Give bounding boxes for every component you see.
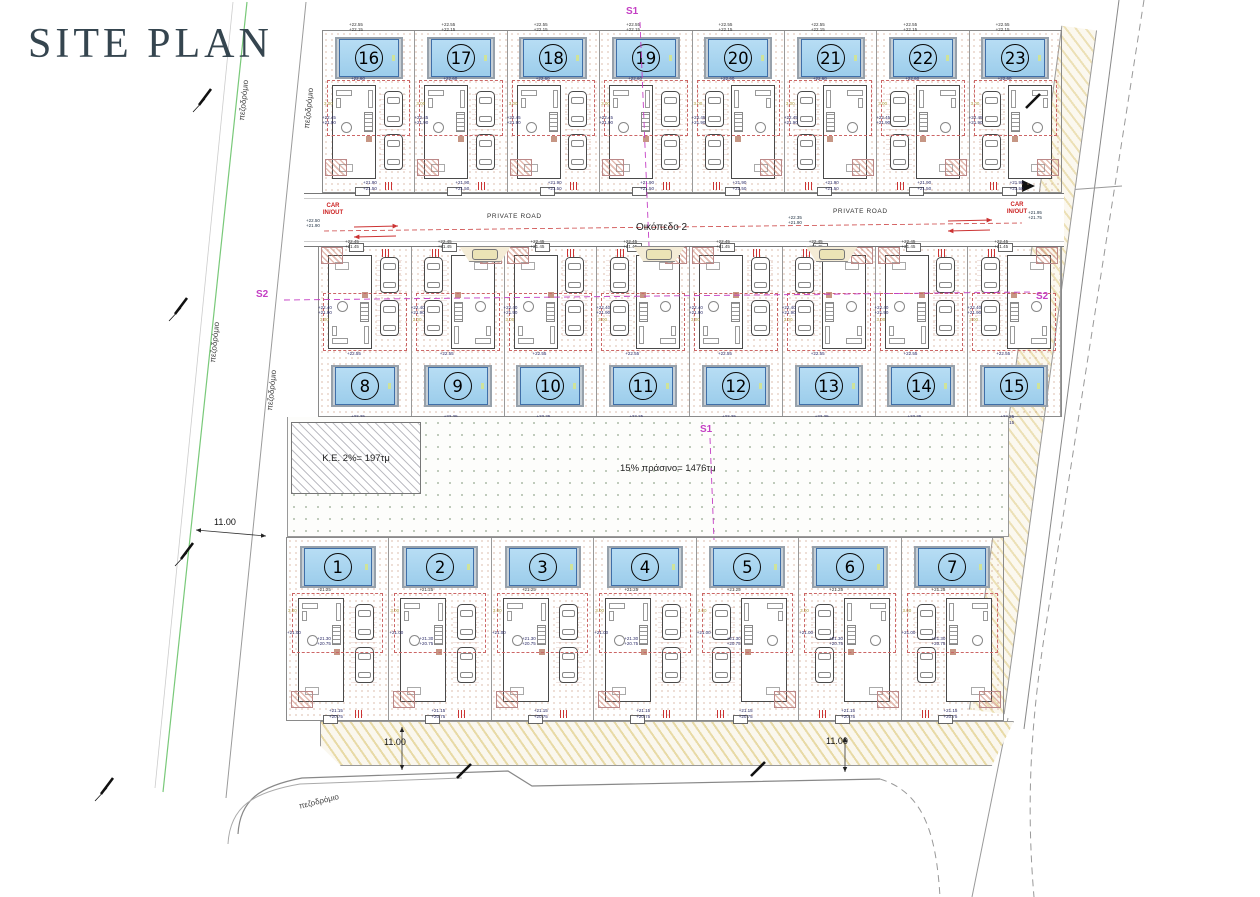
elevation-label: +21.15 +20.75 [841,708,855,719]
section-label-s2-left: S2 [256,289,268,300]
pool: 17 [427,37,495,79]
car-inout-label-left: CAR IN/OUT [312,203,354,217]
car-icon [797,134,816,170]
entry-patio [602,159,624,176]
plot-23: 23+22.55 +22.15+22.60+22.45 +21.90+21.90… [970,31,1061,192]
private-road-label-left: PRIVATE ROAD [487,213,542,220]
driveway-ramp-icon [805,182,814,190]
elevation-label: +22.45 +21.45 [345,239,359,250]
setback-line [416,293,500,351]
elevation-label: +21.30 +20.75 [829,636,843,647]
elevation-label: +22.55 [718,351,732,356]
elevation-label: +21.15 +20.75 [329,708,343,719]
plot-row-top: 16+22.55 +22.15+22.60+22.45 +21.90+21.90… [322,30,1062,193]
plot-number: 1 [324,553,352,581]
car-icon [472,249,498,260]
dimension-label-left: 11.00 [214,517,236,527]
pool: 9 [424,365,492,407]
driveway-ramp-icon [988,249,997,257]
furniture-chim [920,136,926,142]
furniture-chim [1012,136,1018,142]
elevation-label: +21.30 +20.75 [727,636,741,647]
plot-number: 18 [539,44,567,72]
pool-water: 19 [616,39,676,77]
elevation-label: +21.25 [932,587,946,592]
setback-line [804,593,895,653]
driveway-ramp-icon [355,710,364,718]
plot-number: 6 [836,553,864,581]
entry-patio [417,159,439,176]
elevation-label: +21.00 [389,630,403,635]
car-icon [890,134,909,170]
car-icon [795,257,814,293]
plot-18: 18+22.55 +22.15+22.60+22.45 +21.90+21.90… [508,31,600,192]
elevation-label: +22.55 [440,351,454,356]
entry-patio [878,247,900,264]
setback-line [512,80,595,136]
elevation-label: +22.40 +21.90 [782,305,796,316]
driveway-ramp-icon [432,249,441,257]
road-curb-line [304,198,1064,199]
entry-patio [510,159,532,176]
setback-line [702,593,793,653]
elevation-label: +22.55 +22.15 [441,22,455,33]
furniture-chim [735,136,741,142]
pool-water: 4 [611,548,679,586]
elevation-label: +21.00 [492,630,506,635]
elevation-label: +22.55 [904,351,918,356]
driveway-ramp-icon [897,182,906,190]
plot-number: 19 [632,44,660,72]
plot-number: 21 [817,44,845,72]
elevation-label: +22.40 +21.90 [318,305,332,316]
elevation-label: +21.15 +20.75 [944,708,958,719]
pool: 10 [516,365,584,407]
elevation-label: +21.90 +21.50 [917,180,931,191]
setback-dimension: 3.00 [903,608,912,613]
bottom-road-edge-2 [228,778,462,844]
dimension-label-bottom-2: 11.00 [826,736,848,746]
setback-dimension: 3.00 [691,317,700,322]
plot-16: 16+22.55 +22.15+22.60+22.45 +21.90+21.90… [323,31,415,192]
plot-number: 5 [733,553,761,581]
pool: 2 [402,546,478,588]
plot-number: 22 [909,44,937,72]
car-icon [568,134,587,170]
section-label-s1-mid: S1 [700,424,712,435]
furniture-chim [827,136,833,142]
elevation-label: +21.15 +20.75 [739,708,753,719]
elevation-label: +21.25 [419,587,433,592]
entry-patio [692,247,714,264]
plot-number: 3 [529,553,557,581]
pool: 21 [797,37,865,79]
pool-water: 21 [801,39,861,77]
entry-patio [1037,159,1059,176]
elevation-label: +22.40 +21.90 [504,305,518,316]
plot-row-middle: 8+22.45 +21.45+22.55+22.40 +21.90+22.25 … [318,247,1062,417]
elevation-label: +21.25 [522,587,536,592]
elevation-label: +22.55 +22.15 [811,22,825,33]
setback-dimension: 3.00 [601,101,610,106]
setback-dimension: 3.00 [598,317,607,322]
entry-patio [852,159,874,176]
entry-patio [325,159,347,176]
driveway-ramp-icon [385,182,394,190]
plot-4: 4+21.25+21.30 +20.75+21.00+21.15 +20.753… [594,538,696,720]
elevation-label: +21.30 +20.75 [932,636,946,647]
plot-number: 17 [447,44,475,72]
elevation-label: +22.40 +21.90 [967,305,981,316]
driveway-ramp-icon [753,249,762,257]
entry-patio [321,247,343,264]
driveway-ramp-icon [990,182,999,190]
plot-number: 10 [536,372,564,400]
pool: 19 [612,37,680,79]
elevation-label: +21.25 [829,587,843,592]
driveway-ramp-icon [663,182,672,190]
dimension-line-left [196,530,266,536]
elevation-label: +22.55 [347,351,361,356]
elevation-label: +21.30 +20.75 [522,636,536,647]
pool: 12 [702,365,770,407]
car-icon [982,134,1001,170]
entry-patio [877,691,899,708]
setback-dimension: 3.00 [694,101,703,106]
entry-patio [979,691,1001,708]
elevation-label: +22.60 [813,76,827,81]
driveway-ramp-icon [478,182,487,190]
plot-number: 20 [724,44,752,72]
elevation-label: +22.55 [996,351,1010,356]
plot-number: 12 [722,372,750,400]
elevation-label: +21.30 +20.75 [419,636,433,647]
setback-line [974,80,1057,136]
private-road-label-right: PRIVATE ROAD [833,208,888,215]
plot-14: 14+22.45 +21.45+22.55+22.40 +21.90+22.25… [876,247,969,416]
setback-line [323,293,407,351]
elevation-label: +22.45 +21.45 [994,239,1008,250]
car-icon [751,257,770,293]
elevation-label: +21.90 +21.50 [455,180,469,191]
elevation-label: +21.90 +21.50 [548,180,562,191]
section-label-s1-top: S1 [626,6,638,17]
car-label-line2: IN/OUT [312,210,354,217]
setback-dimension: 3.00 [877,317,886,322]
entry-patio [598,691,620,708]
driveway-ramp-icon [458,710,467,718]
entry-patio [760,159,782,176]
elevation-label: +21.00 [287,630,301,635]
dimension-label-bottom-1: 11.00 [384,737,406,747]
car-icon [380,257,399,293]
driveway-ramp-icon [382,249,391,257]
ke-area: K.E. 2%= 197τμ [291,422,421,494]
setback-line [599,593,690,653]
elevation-label: +22.45 +21.90 [414,115,428,126]
driveway-ramp-icon [663,710,672,718]
elevation-label: +22.60 [998,76,1012,81]
setback-line [907,593,998,653]
elevation-label: +22.55 +22.15 [534,22,548,33]
setback-line [789,80,872,136]
pool: 3 [505,546,581,588]
plot-6: 6+21.25+21.30 +20.75+21.00+21.15 +20.753… [799,538,901,720]
elevation-label: +21.00 [594,630,608,635]
setback-line [509,293,593,351]
plot-17: 17+22.55 +22.15+22.60+22.45 +21.90+21.90… [415,31,507,192]
driveway-ramp-icon [938,249,947,257]
pool: 16 [335,37,403,79]
pool: 8 [331,365,399,407]
plot-13: 13+22.45 +21.45+22.55+22.40 +21.90+22.25… [783,247,876,416]
bottom-road-edge [238,771,880,834]
bottom-road-dashed [880,779,940,897]
sidewalk-label: πεζοδρόμιο [298,792,340,811]
plot-8: 8+22.45 +21.45+22.55+22.40 +21.90+22.25 … [319,247,412,416]
setback-dimension: 3.00 [390,608,399,613]
pool: 6 [812,546,888,588]
setback-dimension: 3.00 [320,317,329,322]
plot-number: 2 [426,553,454,581]
elevation-label: +22.60 [628,76,642,81]
sidewalk-label: πεζοδρόμιο [302,87,315,129]
elevation-label: +22.45 +21.90 [784,115,798,126]
setback-dimension: 3.00 [595,608,604,613]
elevation-label: +22.45 +21.45 [902,239,916,250]
elevation-label: +22.60 [351,76,365,81]
setback-dimension: 3.00 [698,608,707,613]
plot-15: 15+22.45 +21.45+22.55+22.40 +21.90+22.25… [968,247,1061,416]
pool: 22 [889,37,957,79]
furniture-chim [458,136,464,142]
setback-dimension: 3.00 [413,317,422,322]
setback-dimension: 3.00 [800,608,809,613]
car-icon [610,257,629,293]
plot-20: 20+22.55 +22.15+22.60+22.45 +21.90+21.90… [693,31,785,192]
entry-patio [774,691,796,708]
driveway-ramp-icon [617,249,626,257]
plot-19: 19+22.55 +22.15+22.60+22.45 +21.90+21.90… [600,31,692,192]
sidewalk-label: πεζοδρόμιο [208,321,221,363]
furniture-chim [551,136,557,142]
plot-number: 4 [631,553,659,581]
elevation-label: +22.40 +21.90 [875,305,889,316]
elevation-label: +22.55 [625,351,639,356]
pool: 7 [914,546,990,588]
setback-dimension: 3.00 [786,101,795,106]
plot-9: 9+22.45 +21.45+22.55+22.40 +21.90+22.25 … [412,247,505,416]
setback-dimension: 3.00 [969,317,978,322]
setback-line [694,293,778,351]
pool-water: 20 [708,39,768,77]
setback-dimension: 3.00 [784,317,793,322]
elevation-label: +22.60 [721,76,735,81]
entry-patio [945,159,967,176]
road-elevation-label: +21.95 +21.75 [1028,210,1042,221]
car-icon [661,134,680,170]
plot-number: 16 [355,44,383,72]
elevation-label: +22.45 +21.45 [438,239,452,250]
elevation-label: +22.45 +21.45 [716,239,730,250]
pool-water: 23 [985,39,1045,77]
pool-water: 14 [891,367,951,405]
boundary-green-line [163,2,247,792]
driveway-ramp-icon [819,710,828,718]
elevation-label: +21.30 +20.75 [624,636,638,647]
plot-11: 11+22.45 +21.45+22.55+22.40 +21.90+22.25… [597,247,690,416]
elevation-label: +21.15 +20.75 [431,708,445,719]
private-road [304,193,1064,247]
setback-line [787,293,871,351]
setback-line [697,80,780,136]
pool: 5 [709,546,785,588]
elevation-label: +22.60 [536,76,550,81]
elevation-label: +22.45 +21.90 [599,115,613,126]
elevation-label: +22.55 [811,351,825,356]
bottom-boundary-strip [320,721,1014,766]
pool-water: 6 [816,548,884,586]
elevation-label: +22.45 +21.90 [322,115,336,126]
setback-dimension: 3.00 [416,101,425,106]
pool-water: 11 [613,367,673,405]
setback-dimension: 3.00 [506,317,515,322]
elevation-label: +22.45 +21.90 [969,115,983,126]
entry-patio [291,691,313,708]
driveway-ramp-icon [570,182,579,190]
driveway-ramp-icon [922,710,931,718]
elevation-label: +22.45 +21.90 [692,115,706,126]
elevation-label: +21.25 [727,587,741,592]
plot-21: 21+22.55 +22.15+22.60+22.45 +21.90+21.90… [785,31,877,192]
plot-number: 14 [907,372,935,400]
section-label-s2-right: S2 [1036,291,1048,302]
green-area: K.E. 2%= 197τμ 15% πράσινο= 1476τμ [287,417,1009,537]
setback-dimension: 3.00 [971,101,980,106]
car-icon [981,257,1000,293]
setback-line [604,80,687,136]
setback-dimension: 3.00 [493,608,502,613]
car-icon [646,249,672,260]
elevation-label: +22.55 +22.15 [719,22,733,33]
driveway-ramp-icon [713,182,722,190]
car-label-line1: CAR [312,203,354,210]
plot-number: 7 [938,553,966,581]
elevation-label: +21.00 [697,630,711,635]
sidewalk-label: πεζοδρόμιο [265,369,278,411]
green-area-label: 15% πράσινο= 1476τμ [620,463,716,474]
elevation-label: +21.25 [317,587,331,592]
elevation-label: +21.30 +20.75 [317,636,331,647]
entry-patio [393,691,415,708]
plot-3: 3+21.25+21.30 +20.75+21.00+21.15 +20.753… [492,538,594,720]
car-icon [424,257,443,293]
elevation-label: +22.60 [443,76,457,81]
furniture-chim [643,136,649,142]
entry-patio [507,247,529,264]
plot-2: 2+21.25+21.30 +20.75+21.00+21.15 +20.753… [389,538,491,720]
pool-water: 16 [339,39,399,77]
elevation-label: +21.90 +21.50 [733,180,747,191]
plot-number: 11 [629,372,657,400]
elevation-label: +22.60 [905,76,919,81]
car-label-line1: CAR [996,202,1038,209]
driveway-ramp-icon [567,249,576,257]
elevation-label: +21.15 +20.75 [636,708,650,719]
pool: 11 [609,365,677,407]
elevation-label: +22.55 +22.15 [996,22,1010,33]
pool-water: 3 [509,548,577,586]
pool: 20 [704,37,772,79]
car-icon [384,134,403,170]
elevation-label: +21.90 +21.50 [640,180,654,191]
road-elevation-label: +22.35 +21.90 [788,215,802,226]
car-icon [565,257,584,293]
entry-patio [496,691,518,708]
setback-line [394,593,485,653]
plot-10: 10+22.45 +21.45+22.55+22.40 +21.90+22.25… [505,247,598,416]
pool-water: 5 [713,548,781,586]
plot-7: 7+21.25+21.30 +20.75+21.00+21.15 +20.753… [902,538,1003,720]
pool: 13 [795,365,863,407]
plot-number: 23 [1001,44,1029,72]
pool-water: 1 [304,548,372,586]
elevation-label: +22.40 +21.90 [411,305,425,316]
plot-number: 13 [815,372,843,400]
elevation-label: +21.00 [902,630,916,635]
elevation-label: +22.40 +21.90 [596,305,610,316]
pool: 23 [981,37,1049,79]
elevation-label: +21.25 [624,587,638,592]
elevation-label: +22.45 +21.90 [507,115,521,126]
setback-line [601,293,685,351]
elevation-label: +22.40 +21.90 [689,305,703,316]
pool-water: 22 [893,39,953,77]
pool: 18 [519,37,587,79]
pool: 15 [980,365,1048,407]
pool-water: 18 [523,39,583,77]
elevation-label: +21.00 [799,630,813,635]
ke-area-label: K.E. 2%= 197τμ [322,453,390,464]
pool-water: 15 [984,367,1044,405]
setback-dimension: 3.00 [288,608,297,613]
pool: 1 [300,546,376,588]
plot-22: 22+22.55 +22.15+22.60+22.45 +21.90+21.90… [877,31,969,192]
elevation-label: +21.90 +21.50 [1010,180,1024,191]
elevation-label: +22.45 +21.45 [531,239,545,250]
setback-line [419,80,502,136]
elevation-label: +22.55 +22.15 [349,22,363,33]
road-elevation-label: +22.50 +21.90 [306,218,320,229]
setback-dimension: 3.00 [878,101,887,106]
elevation-label: +22.55 +22.15 [903,22,917,33]
plot-12: 12+22.45 +21.45+22.55+22.40 +21.90+22.25… [690,247,783,416]
setback-line [292,593,383,653]
sidewalk-label: πεζοδρόμιο [237,79,250,121]
plot-number: 15 [1000,372,1028,400]
entry-patio [1036,247,1058,264]
pool-water: 12 [706,367,766,405]
plot-row-bottom: 1+21.25+21.30 +20.75+21.00+21.15 +20.753… [286,537,1004,721]
elevation-label: +22.55 +22.15 [626,22,640,33]
elevation-label: +21.90 +21.50 [363,180,377,191]
parcel-label: Οικόπεδο 2 [636,222,687,233]
car-icon [476,134,495,170]
road-curb-line [304,241,1064,242]
pool-water: 10 [520,367,580,405]
setback-dimension: 3.00 [509,101,518,106]
road-edge-line [155,2,233,788]
